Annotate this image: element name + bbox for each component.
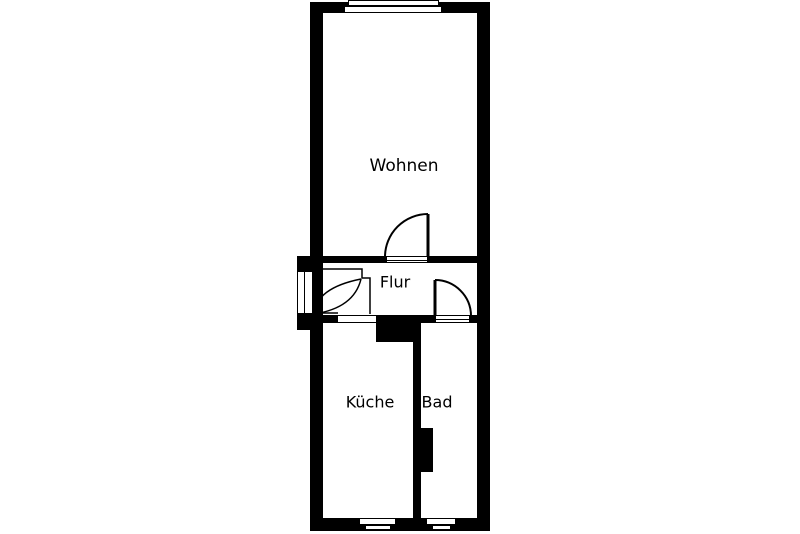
entrance-door-threshold-line xyxy=(304,272,305,313)
window-top-inner-bar xyxy=(344,6,442,13)
wohnen-door-threshold-line xyxy=(387,260,427,261)
bad-door-threshold xyxy=(435,315,470,323)
wohnen-door-threshold xyxy=(386,256,428,263)
bad-door-threshold-line xyxy=(436,319,469,320)
entrance-door-threshold xyxy=(297,271,313,314)
kueche-door-threshold xyxy=(337,315,377,323)
room-label-kueche: Küche xyxy=(346,393,395,412)
room-label-flur: Flur xyxy=(380,273,410,292)
door-swings-overlay xyxy=(0,0,800,534)
entrance-pier-upper xyxy=(297,256,323,272)
window-kueche-outer-bar xyxy=(359,518,396,525)
window-kueche-inner-bar xyxy=(365,525,391,530)
wall-bottom xyxy=(310,518,490,531)
bad-fixture-block xyxy=(421,428,433,472)
floorplan-canvas: Wohnen Flur Küche Bad xyxy=(0,0,800,534)
room-label-bad: Bad xyxy=(422,393,453,412)
wall-kueche-bad xyxy=(413,342,421,518)
wall-right xyxy=(477,2,490,531)
entrance-pier-lower xyxy=(297,313,323,330)
window-bad-inner-bar xyxy=(432,525,451,530)
window-bad-outer-bar xyxy=(426,518,456,525)
wohnen-door-arc xyxy=(385,214,428,257)
chimney-block xyxy=(376,315,421,342)
bad-door-arc xyxy=(435,280,471,316)
room-label-wohnen: Wohnen xyxy=(370,156,439,176)
